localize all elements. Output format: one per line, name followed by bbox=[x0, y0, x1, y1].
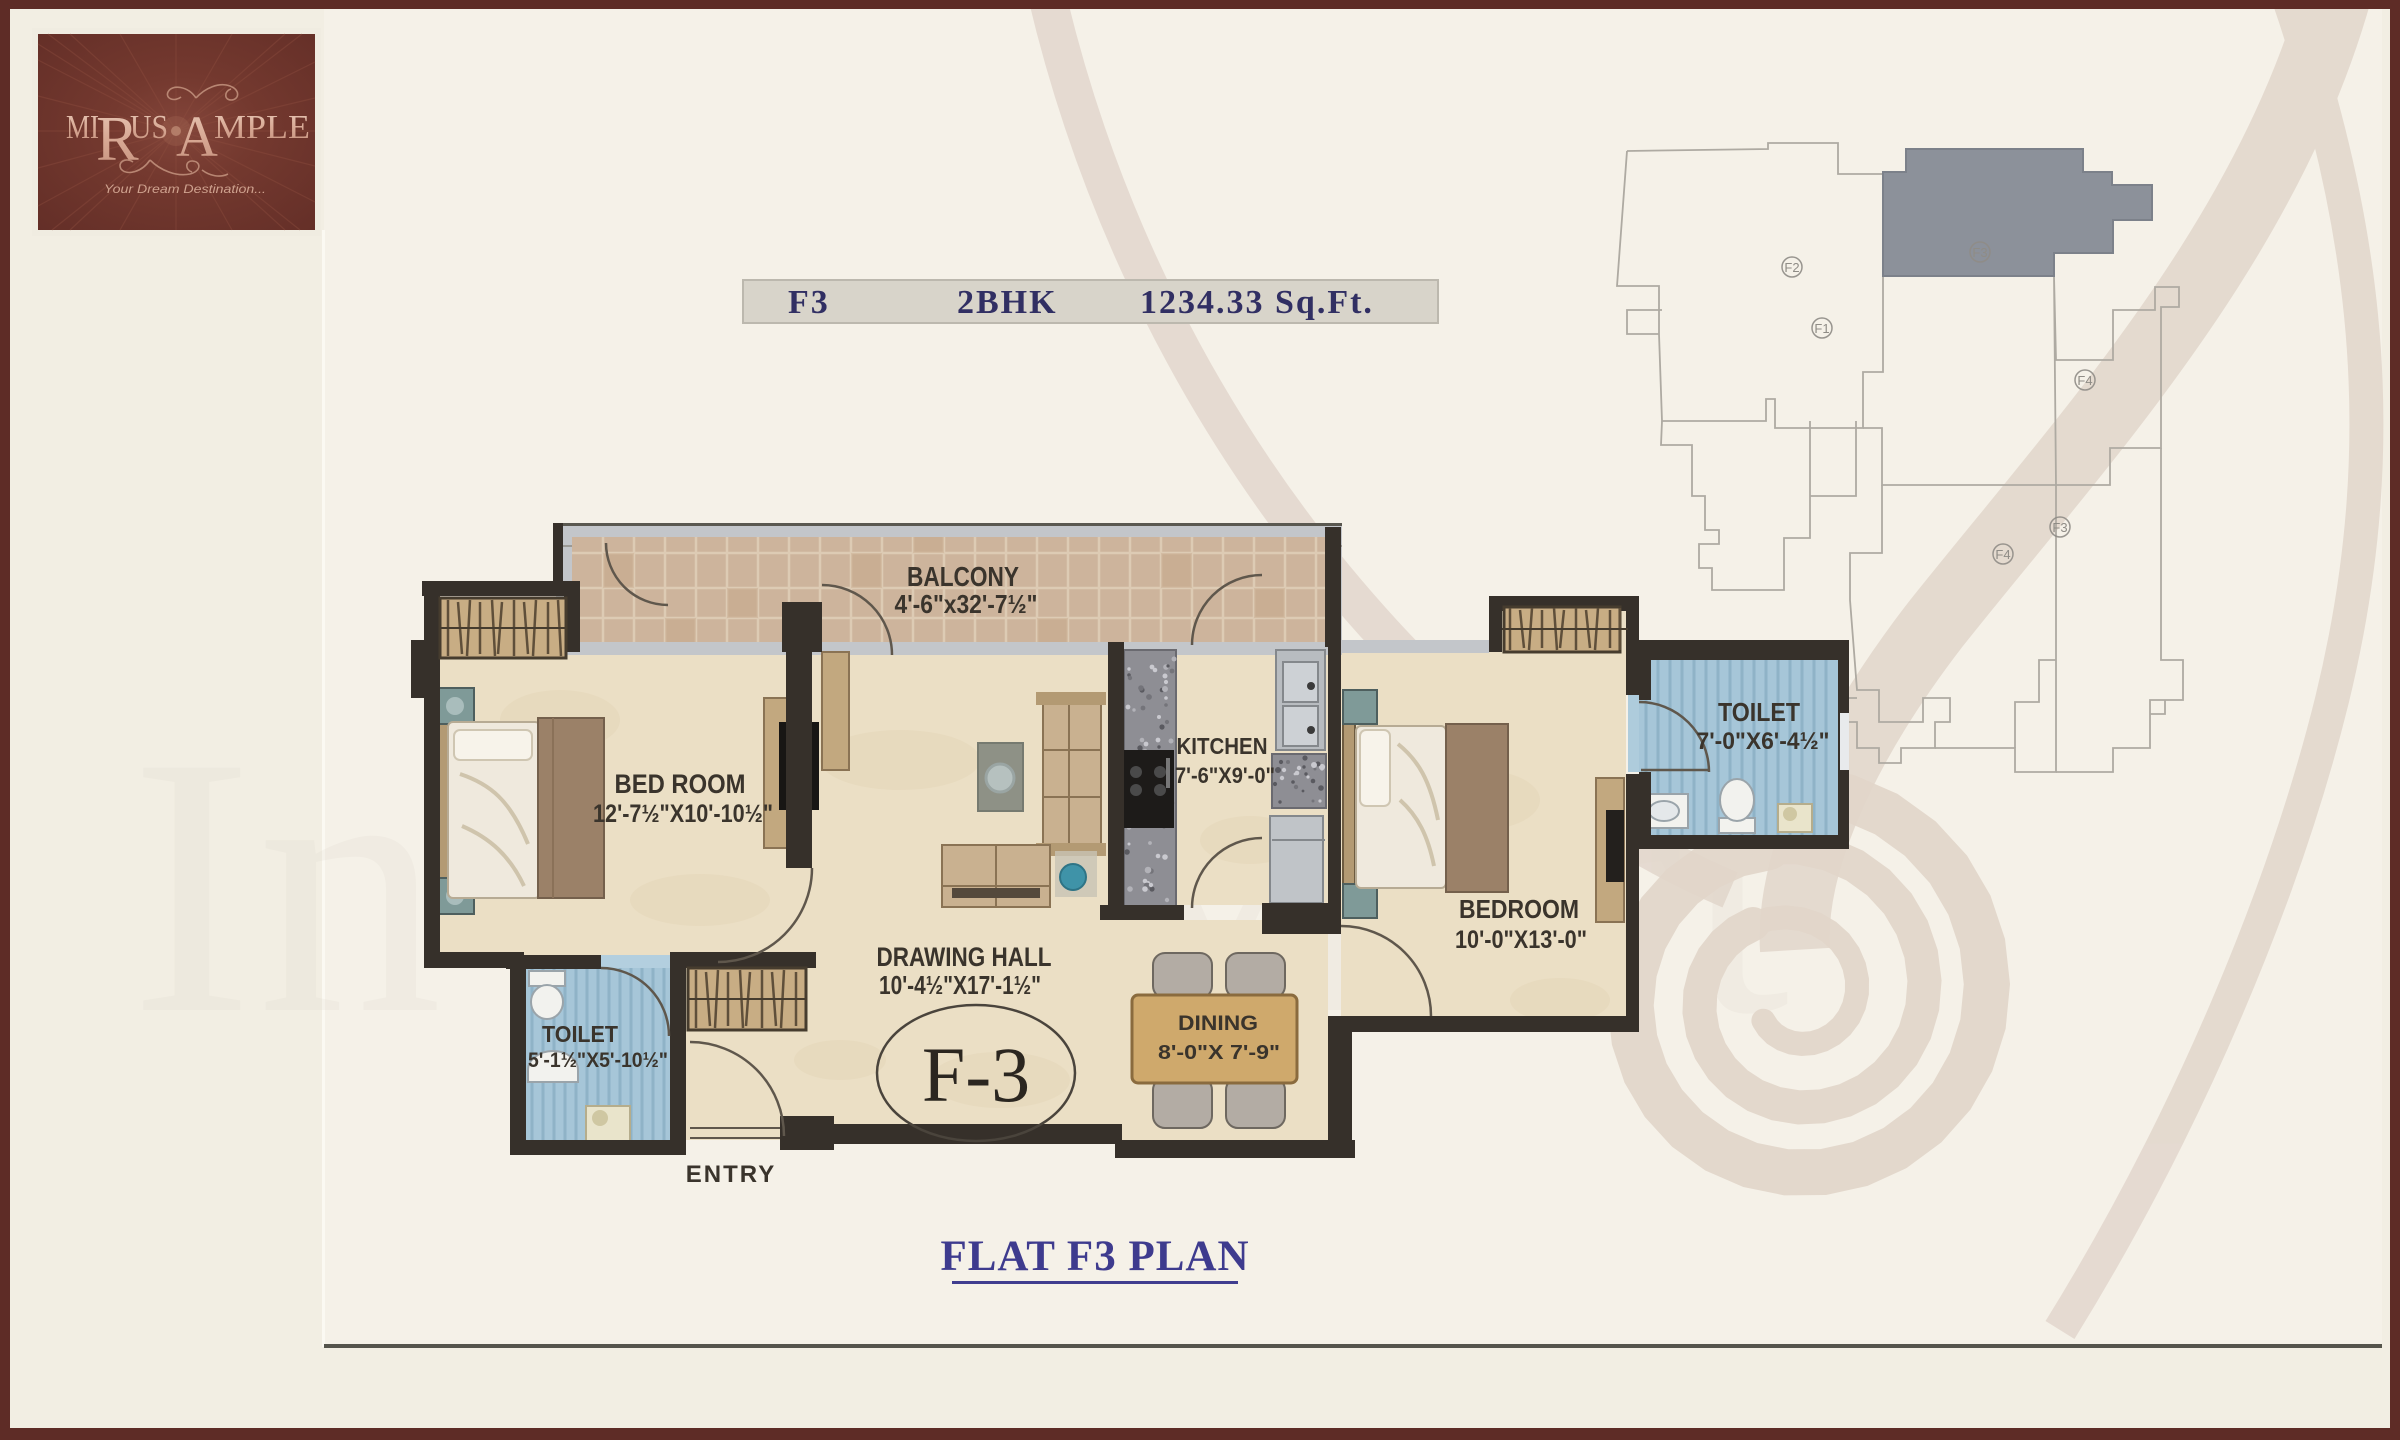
svg-text:F3: F3 bbox=[2052, 520, 2067, 535]
svg-text:MPLE: MPLE bbox=[214, 109, 310, 146]
svg-text:KITCHEN: KITCHEN bbox=[1177, 733, 1268, 759]
svg-text:BEDROOM: BEDROOM bbox=[1459, 894, 1579, 924]
svg-text:MI: MI bbox=[66, 109, 99, 146]
svg-text:A: A bbox=[176, 104, 218, 169]
svg-text:5'-1½"X5'-10½": 5'-1½"X5'-10½" bbox=[528, 1049, 668, 1072]
svg-text:10'-0"X13'-0": 10'-0"X13'-0" bbox=[1455, 926, 1587, 954]
svg-text:BED ROOM: BED ROOM bbox=[615, 769, 746, 799]
svg-text:US: US bbox=[130, 109, 168, 146]
svg-text:DINING: DINING bbox=[1178, 1012, 1258, 1035]
svg-text:DRAWING HALL: DRAWING HALL bbox=[877, 942, 1052, 972]
svg-text:FLAT F3 PLAN: FLAT F3 PLAN bbox=[940, 1233, 1249, 1280]
svg-text:F4: F4 bbox=[2077, 373, 2092, 388]
svg-text:F3: F3 bbox=[1972, 245, 1987, 260]
svg-text:7'-6"X9'-0": 7'-6"X9'-0" bbox=[1175, 763, 1275, 788]
svg-text:F-3: F-3 bbox=[922, 1031, 1030, 1118]
svg-text:TOILET: TOILET bbox=[542, 1021, 618, 1047]
svg-text:F1: F1 bbox=[1814, 321, 1829, 336]
svg-text:TOILET: TOILET bbox=[1718, 697, 1800, 727]
svg-text:4'-6"x32'-7½": 4'-6"x32'-7½" bbox=[895, 589, 1038, 619]
svg-text:ENTRY: ENTRY bbox=[686, 1161, 776, 1188]
svg-text:Your Dream Destination...: Your Dream Destination... bbox=[104, 182, 266, 196]
svg-text:F2: F2 bbox=[1784, 260, 1799, 275]
svg-text:8'-0"X 7'-9": 8'-0"X 7'-9" bbox=[1158, 1042, 1280, 1064]
svg-text:7'-0"X6'-4½": 7'-0"X6'-4½" bbox=[1697, 728, 1830, 755]
svg-text:2BHK: 2BHK bbox=[957, 284, 1058, 321]
svg-text:10'-4½"X17'-1½": 10'-4½"X17'-1½" bbox=[879, 970, 1041, 1000]
svg-text:12'-7½"X10'-10½": 12'-7½"X10'-10½" bbox=[593, 800, 773, 828]
svg-text:F3: F3 bbox=[788, 284, 830, 321]
svg-text:1234.33 Sq.Ft.: 1234.33 Sq.Ft. bbox=[1140, 284, 1374, 321]
svg-text:F4: F4 bbox=[1995, 547, 2010, 562]
svg-text:BALCONY: BALCONY bbox=[907, 561, 1019, 592]
